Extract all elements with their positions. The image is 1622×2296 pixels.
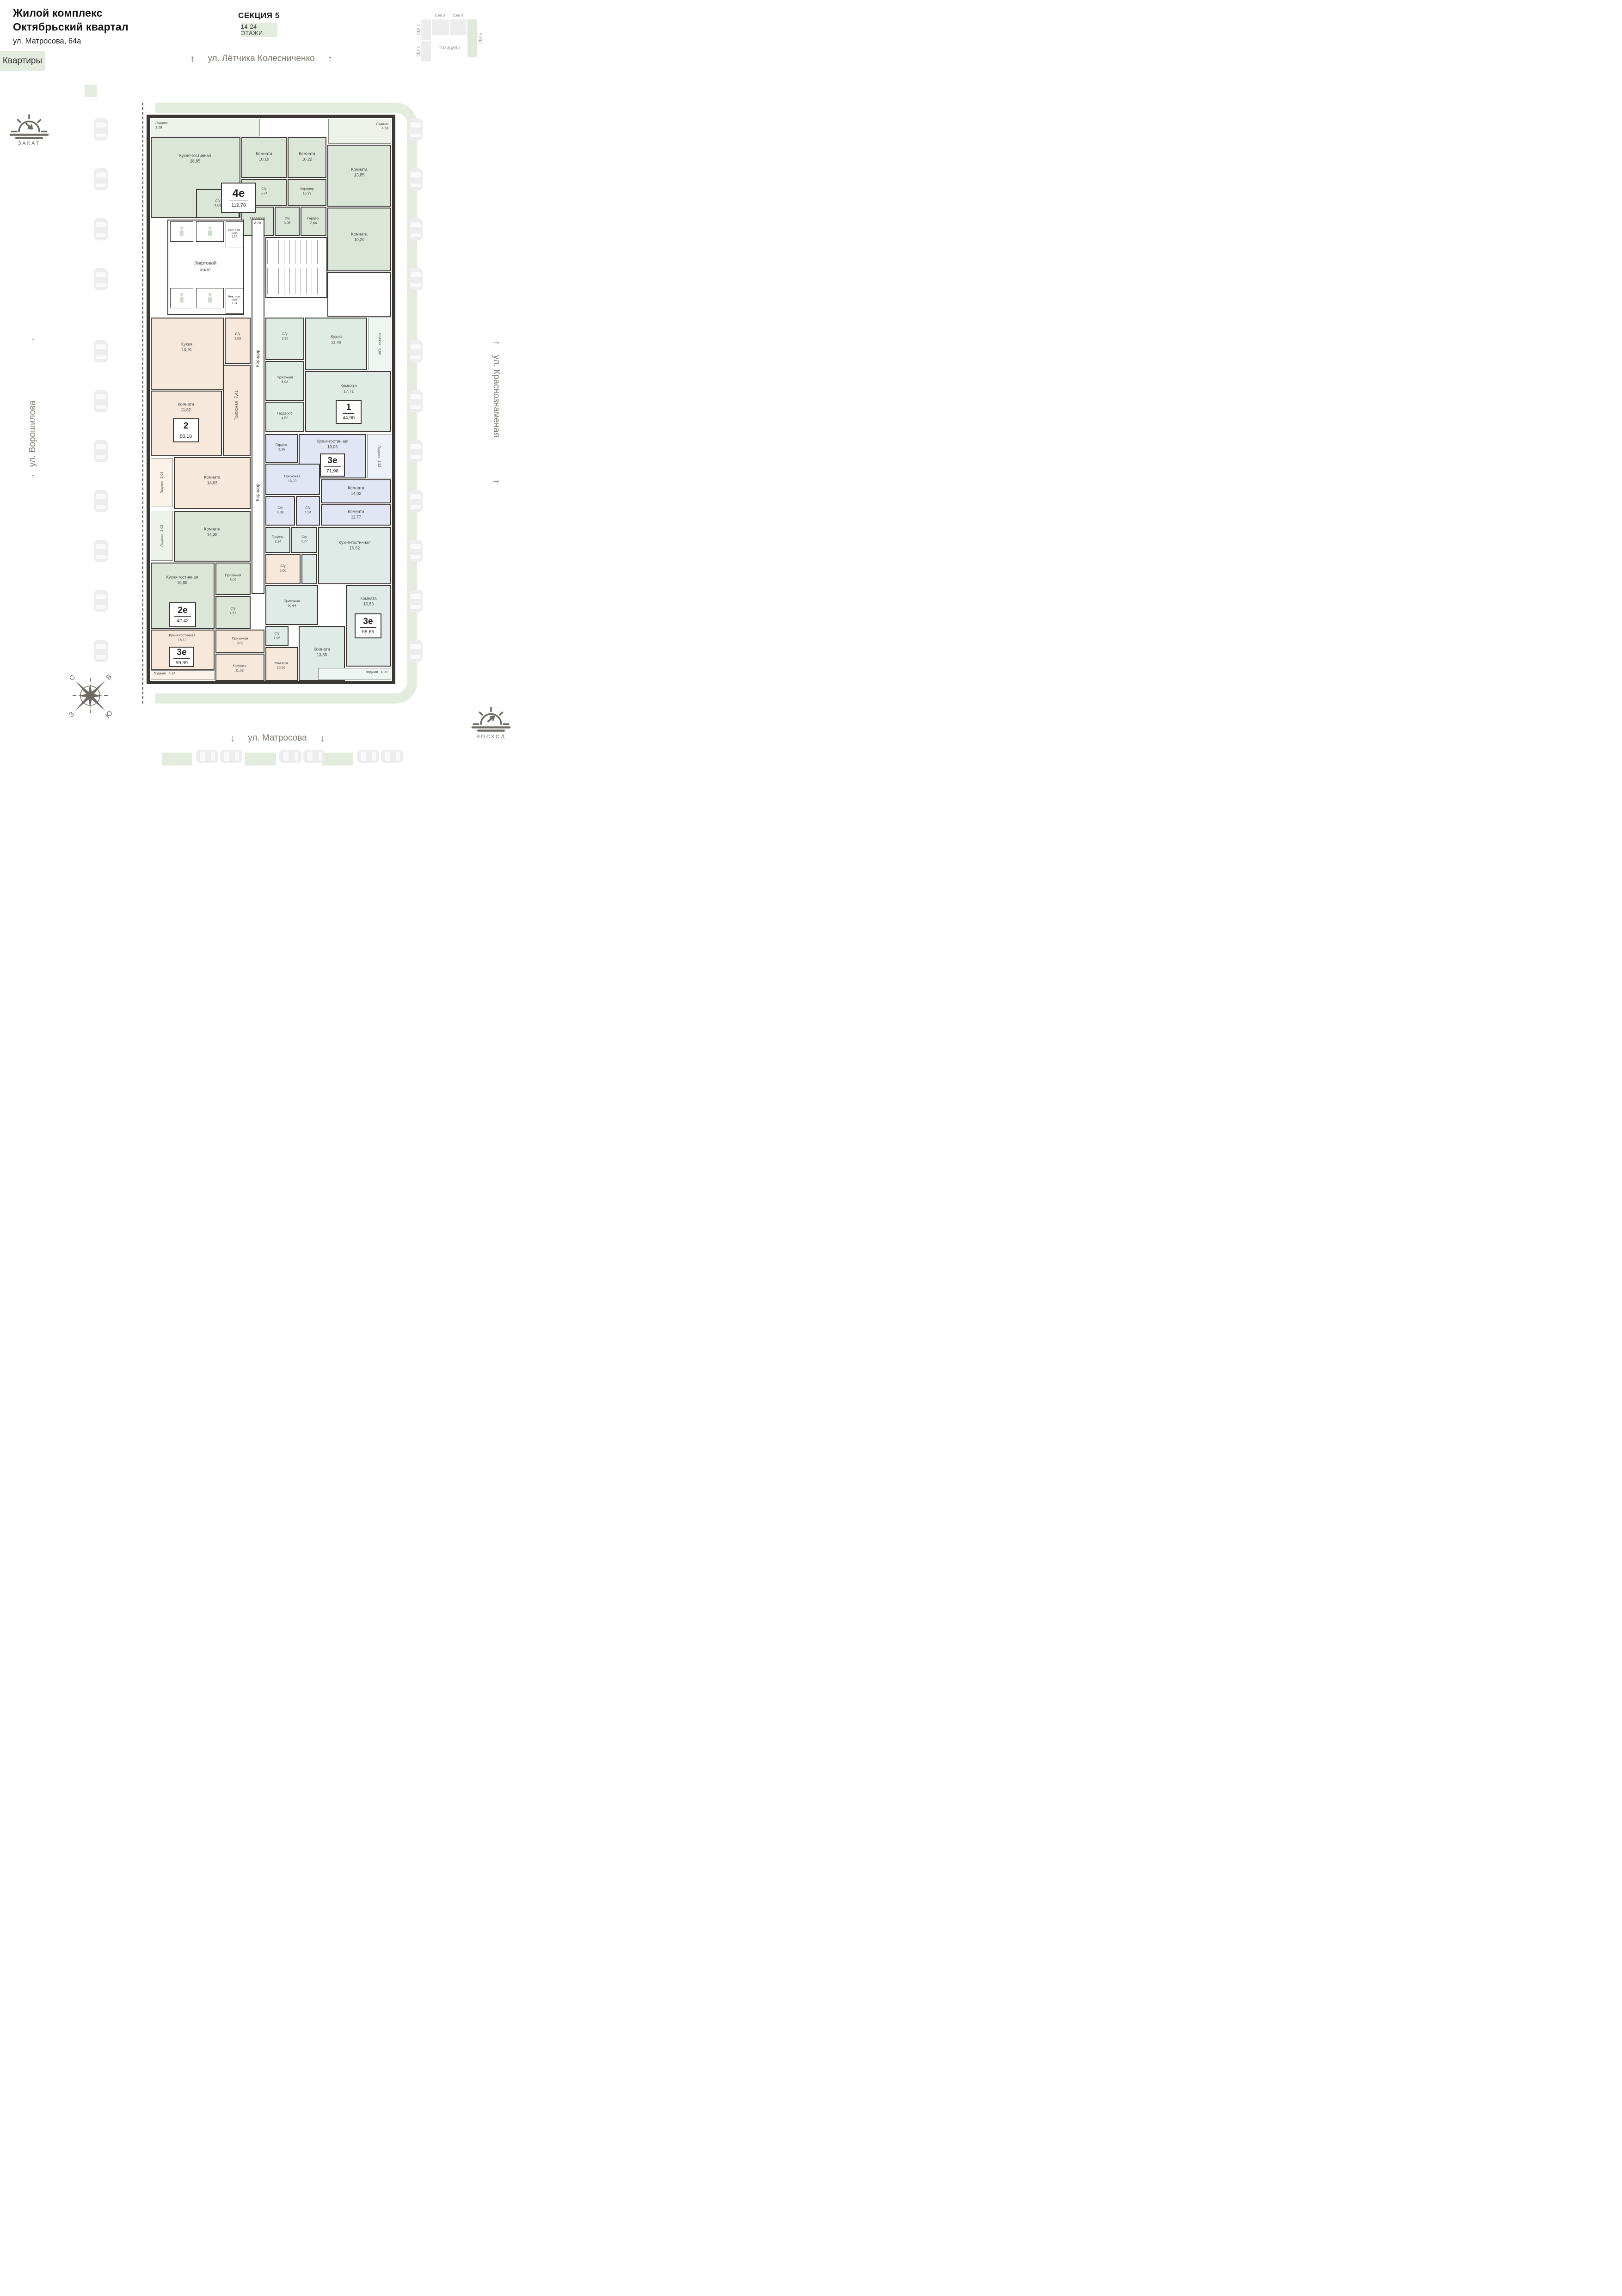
sunrise-icon <box>468 706 514 732</box>
car-icon <box>409 540 423 562</box>
stairs-flight <box>267 268 326 294</box>
elevator-person-icon <box>206 225 214 238</box>
complex-name-line2: Октябрьский квартал <box>13 20 129 34</box>
room-label: Комната17,71 <box>340 383 356 394</box>
car-icon <box>409 168 423 190</box>
room-label: Комната10,20 <box>351 232 367 242</box>
stairs-flight <box>267 240 326 264</box>
arrow-up-icon: ↑ <box>31 472 36 482</box>
room-label: Неж. пом. №661,34 <box>227 296 242 306</box>
car-icon <box>409 118 423 141</box>
room-label: Кухня-гостинная16,62 <box>339 540 371 551</box>
car-icon <box>409 590 423 612</box>
room-label: С/у4,68 <box>215 198 221 208</box>
room-label: Комната11,62 <box>233 663 246 673</box>
street-bottom: ↓ ул. Матросова ↓ <box>153 731 402 745</box>
car-icon <box>409 218 423 240</box>
car-icon <box>94 490 108 512</box>
section-title: СЕКЦИЯ 5 <box>213 11 305 20</box>
minimap-label-sec4: СЕК 4 <box>453 14 463 18</box>
apartment-badge-3e[interactable]: 3е68,66 <box>355 613 381 638</box>
sunrise-label: ВОСХОД <box>468 734 514 740</box>
room-label: Комната10,19 <box>256 151 272 162</box>
room-bathroom <box>225 318 251 364</box>
room-label: Комната14,63 <box>204 475 220 485</box>
room-label: С/у1,95 <box>274 631 281 640</box>
compass-east-label: В <box>104 673 113 681</box>
car-icon <box>279 750 301 763</box>
site-boundary-dashed <box>142 103 144 704</box>
minimap-block-sec5-active[interactable] <box>467 19 477 57</box>
room-label: Гардер.3,36 <box>276 442 288 452</box>
room-label: Комната16,83 <box>360 596 376 606</box>
room-label: Лоджия3,03 <box>160 470 164 495</box>
room-label: Лоджия 4,14 <box>154 671 175 676</box>
car-icon <box>94 118 108 141</box>
room-label: Комната13,85 <box>351 167 367 178</box>
minimap-label-sec1: СЕК 1 <box>417 46 421 56</box>
room-kitchen-living <box>318 527 391 584</box>
room-label: Гардер.2,64 <box>307 216 320 225</box>
compass-rose-icon: С В Ю З <box>60 666 120 726</box>
apartment-badge-3e[interactable]: 3е71,96 <box>320 453 345 477</box>
car-icon <box>94 390 108 412</box>
apartment-badge-2e[interactable]: 2е42,42 <box>169 602 196 627</box>
room-hallway-part <box>301 554 317 584</box>
minimap-label-sec5: СЕК 5 <box>479 33 483 43</box>
car-icon <box>94 640 108 662</box>
room-label: Гардер.2,24 <box>272 534 284 544</box>
room-label: Коридор16,39 <box>300 186 314 196</box>
car-icon <box>409 640 423 662</box>
room-label: С/у3,89 <box>234 331 241 341</box>
page-title: Жилой комплекс Октябрьский квартал <box>13 6 129 34</box>
arrow-down-icon: ↓ <box>320 734 325 743</box>
arrow-up-icon: ↑ <box>190 54 195 64</box>
compass-west-label: З <box>68 710 76 718</box>
room-label: Кухня-гостинная19,05 <box>317 439 349 449</box>
room-label: Гардероб3,29 <box>250 216 265 225</box>
apartments-badge[interactable]: Квартиры <box>0 51 45 71</box>
apartment-badge-2[interactable]: 250,18 <box>173 418 199 442</box>
corridor-label: Коридор <box>255 482 261 502</box>
room-label: Комната11,77 <box>348 509 364 520</box>
street-top-label: ул. Лётчика Колесниченко <box>208 54 314 64</box>
building-plan: Лоджия3,28 Кухня-гостинная28,85 Комната1… <box>147 115 395 684</box>
room-label: Прихожая10,66 <box>284 599 300 608</box>
elevator <box>170 288 193 308</box>
minimap-label-sec3: СЕК 3 <box>435 14 445 18</box>
floors-badge: 14-24 ЭТАЖИ <box>241 23 277 37</box>
minimap-block-sec1[interactable] <box>421 41 431 61</box>
car-icon <box>94 590 108 612</box>
room-label: С/у4,39 <box>277 505 284 514</box>
street-left-label: ул. Ворошилова <box>28 356 38 467</box>
car-icon <box>409 440 423 462</box>
car-icon <box>409 340 423 362</box>
room-label: С/у3,90 <box>282 331 289 341</box>
sunset-label: ЗАКАТ <box>8 141 50 146</box>
car-icon <box>381 750 403 763</box>
room-label: С/у4,77 <box>301 534 308 544</box>
car-icon <box>94 440 108 462</box>
lift-hall-label: Лифтовой холл <box>190 260 220 273</box>
car-icon <box>220 750 242 763</box>
central-corridor <box>252 219 264 594</box>
sunset-icon <box>8 114 50 140</box>
street-top: ↑ ул. Лётчика Колесниченко ↑ <box>153 52 370 66</box>
vestibule <box>327 272 391 317</box>
minimap-block-sec4[interactable] <box>450 19 467 35</box>
elevator-person-icon <box>178 292 185 305</box>
minimap-label-sec2: СЕК 2 <box>417 24 421 35</box>
room-label: Лоджия3,32 <box>377 444 381 468</box>
room-label: Прихожая7,41 <box>234 389 240 422</box>
room-label: С/у4,57 <box>230 606 237 615</box>
room-label: Комната10,22 <box>299 151 315 162</box>
arrow-right-icon: → <box>491 475 501 485</box>
room-label: Неж. пом. №651,17 <box>227 229 242 239</box>
arrow-down-icon: ↓ <box>230 734 235 743</box>
walkway-strip <box>162 753 192 765</box>
car-icon <box>196 750 218 763</box>
room-label: Лоджия4,08 <box>353 122 388 131</box>
room-label: Лоджия3,28 <box>155 121 168 130</box>
street-right-label: ул. Краснознаменая <box>491 355 501 471</box>
location-minimap: СЕК 3 СЕК 4 СЕК 2 СЕК 1 СЕК 5 ПОЗИЦИЯ 3 <box>416 10 485 66</box>
room-label: С/у5,74 <box>261 186 268 196</box>
room-label: Комната14,35 <box>204 527 220 537</box>
apartment-badge-4e[interactable]: 4е112,78 <box>221 183 256 213</box>
complex-name-line1: Жилой комплекс <box>13 6 129 20</box>
car-icon <box>409 490 423 512</box>
room-label: Лоджия2,60 <box>377 331 382 356</box>
car-icon <box>303 750 326 763</box>
room-label: Комната14,02 <box>348 485 364 496</box>
room-label: Гардероб4,52 <box>277 411 293 420</box>
elevator <box>196 221 224 242</box>
arrow-up-icon: ↑ <box>31 337 36 346</box>
car-icon <box>409 390 423 412</box>
street-bottom-label: ул. Матросова <box>248 733 307 743</box>
floors-badge-label: 14-24 ЭТАЖИ <box>241 24 277 37</box>
arrow-right-icon: → <box>491 337 501 346</box>
room-label: Кухня10,91 <box>181 342 192 352</box>
room-label: Кухня-гостинная18,12 <box>169 633 195 642</box>
room-label: С/у3,05 <box>284 216 291 225</box>
room-label: Лоджия 4,08 <box>329 670 387 674</box>
compass-south-label: Ю <box>104 709 114 720</box>
room-label: Кухня-гостинная16,89 <box>166 575 198 585</box>
corridor-label: Коридор <box>255 348 261 368</box>
car-icon <box>94 218 108 240</box>
room-label: Комната11,82 <box>178 402 194 412</box>
car-icon <box>409 268 423 290</box>
room-label: Комната13,56 <box>274 661 288 670</box>
room-label: Прихожая13,22 <box>284 474 301 483</box>
room-label: Лоджия3,03 <box>160 523 164 548</box>
elevator <box>170 221 193 242</box>
walkway-strip <box>322 753 353 765</box>
apartment-badge-3e[interactable]: 3е59,39 <box>169 647 194 667</box>
minimap-position-label: ПОЗИЦИЯ 3 <box>439 46 461 50</box>
elevator-person-icon <box>178 225 185 238</box>
room-loggia <box>152 119 260 136</box>
room-label: С/у6,00 <box>280 563 287 573</box>
room-label: Прихожая5,98 <box>277 375 293 384</box>
room-label: Комната13,55 <box>313 647 330 657</box>
minimap-block-sec3[interactable] <box>432 19 449 35</box>
elevator <box>196 288 224 308</box>
floorplan-page: Жилой комплекс Октябрьский квартал ул. М… <box>0 0 541 765</box>
car-icon <box>94 540 108 562</box>
apartments-badge-label: Квартиры <box>3 56 42 66</box>
car-icon <box>94 168 108 190</box>
elevator-person-icon <box>206 292 214 305</box>
car-icon <box>357 750 379 763</box>
car-icon <box>94 268 108 290</box>
minimap-block-sec2[interactable] <box>421 19 431 40</box>
arrow-up-icon: ↑ <box>328 54 333 64</box>
room-kitchen <box>151 318 224 390</box>
walkway-strip <box>245 753 276 765</box>
room-label: С/у4,34 <box>305 505 312 514</box>
walkway-square <box>85 85 97 97</box>
room-label: Прихожая5,09 <box>225 573 241 582</box>
complex-address: ул. Матросова, 64а <box>13 37 81 46</box>
apartment-badge-1[interactable]: 144,90 <box>336 400 362 424</box>
car-icon <box>94 340 108 362</box>
room-label: Прихожая8,02 <box>232 636 248 645</box>
room-label: Кухня-гостинная28,85 <box>179 153 211 164</box>
room-label: Кухня11,49 <box>331 334 342 345</box>
